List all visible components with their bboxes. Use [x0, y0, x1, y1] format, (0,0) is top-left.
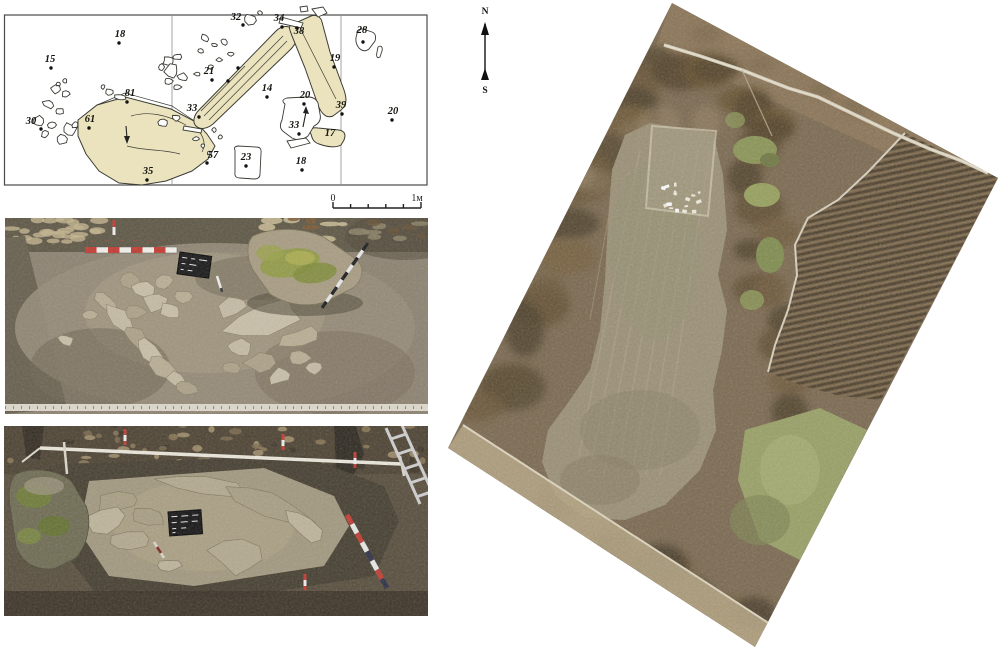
photo-excavation-top	[5, 218, 428, 414]
north-label: N	[482, 7, 489, 17]
plan-stone	[245, 14, 257, 25]
plan-stone	[63, 91, 71, 97]
plan-point-dot	[49, 66, 52, 69]
plan-point-label: 39	[335, 100, 347, 111]
plan-point-dot	[297, 132, 300, 135]
plan-stone	[158, 119, 168, 126]
plan-stone	[227, 52, 234, 56]
plan-stone	[72, 122, 78, 128]
green-patches	[725, 112, 784, 310]
plan-point-dot	[205, 161, 208, 164]
plan-point-dot	[117, 41, 120, 44]
plan-point-label: 23	[240, 152, 252, 163]
excavation-stones-white	[661, 182, 702, 213]
photo-excavation-bottom	[4, 426, 428, 616]
plan-stone	[57, 134, 67, 144]
plan-point-dot	[145, 178, 148, 181]
plan-stone	[56, 82, 60, 86]
north-arrow: N S	[455, 0, 515, 100]
photo-grain	[440, 0, 1000, 650]
plan-stone	[101, 85, 105, 90]
compass-arrowhead-s	[481, 68, 489, 80]
plan-point-label: 21	[203, 66, 215, 77]
plan-point-label: 28	[356, 25, 368, 36]
plan-point-label: 17	[325, 128, 336, 139]
road	[590, 45, 988, 320]
plan-stone	[159, 64, 165, 71]
plan-point-dot	[340, 112, 343, 115]
plan-point-label: 33	[288, 120, 300, 131]
plan-stone	[216, 58, 223, 62]
plan-point-label: 20	[299, 90, 311, 101]
plan-point-label: 18	[296, 156, 307, 167]
plan-stone	[212, 43, 218, 46]
field-strip-north	[655, 3, 998, 196]
plan-point-label: 57	[208, 150, 219, 161]
plough-marks	[575, 150, 710, 475]
figure-canvas: 1518306181355733213234381928142033173920…	[0, 0, 1000, 650]
plan-point-label: 33	[186, 103, 198, 114]
scale-bar: 0 1м	[331, 193, 424, 208]
plan-stone	[212, 128, 217, 133]
plan-point-dot	[300, 168, 303, 171]
plan-point-label: 38	[293, 26, 305, 37]
plan-point-label: 15	[45, 54, 56, 65]
plan-point-dot	[210, 78, 213, 81]
scrub-trees	[450, 25, 969, 629]
plan-point-dot	[244, 164, 247, 167]
excavation-enclosure	[646, 126, 716, 216]
plan-point-label: 19	[330, 53, 341, 64]
plan-point-label: 14	[262, 83, 273, 94]
photo-grain	[4, 426, 428, 616]
plan-point-label: 20	[387, 106, 399, 117]
plan-stone	[56, 109, 63, 115]
plan-stone	[63, 79, 67, 84]
plan-point-label: 32	[230, 12, 242, 23]
plan-stone	[194, 72, 200, 76]
compass-arrowhead-n	[481, 22, 489, 35]
plan-point-dot	[390, 118, 393, 121]
plan-point-dot	[87, 126, 90, 129]
plan-stone	[42, 130, 49, 137]
scale-bar-line	[333, 202, 421, 208]
plan-stone	[164, 64, 177, 78]
plan-point-dot	[125, 100, 128, 103]
plan-point-label: 18	[115, 29, 126, 40]
plan-stone	[221, 39, 227, 45]
central-field	[542, 123, 727, 520]
plan-point-dot	[295, 26, 298, 29]
plan-stone	[174, 85, 182, 90]
plan-stone	[198, 49, 204, 54]
photo-grain	[5, 218, 428, 414]
plan-stone	[173, 54, 182, 59]
stone-stele-1	[194, 27, 297, 129]
plan-point-dot	[39, 127, 42, 130]
plan-stone	[218, 135, 222, 139]
plan-point-dot	[280, 25, 283, 28]
plan-point-dot	[265, 95, 268, 98]
field-boundary-path	[768, 133, 905, 372]
plowed-field	[768, 133, 998, 400]
plan-stone	[47, 122, 56, 129]
plan-stone	[42, 101, 53, 109]
plan-point-dot	[236, 66, 239, 69]
white-speck	[485, 305, 489, 309]
plan-point-dot	[302, 102, 305, 105]
plan-stone	[106, 89, 113, 95]
plan-point-label: 30	[25, 116, 37, 127]
plan-point-label: 81	[125, 88, 136, 99]
plan-point-label: 34	[273, 13, 285, 24]
edge-track	[448, 425, 770, 647]
plan-point-label: 35	[142, 166, 154, 177]
plan-point-dot	[226, 79, 229, 82]
plan-point-dot	[361, 40, 364, 43]
plan-point-dot	[332, 65, 335, 68]
plan-point-label: 61	[85, 114, 96, 125]
site-plan: 1518306181355733213234381928142033173920…	[0, 0, 450, 215]
green-field	[738, 408, 867, 560]
plan-point-dot	[241, 23, 244, 26]
plan-stone	[177, 73, 188, 81]
south-label: S	[482, 86, 487, 96]
plan-point-dot	[197, 115, 200, 118]
plan-stone	[202, 34, 209, 42]
